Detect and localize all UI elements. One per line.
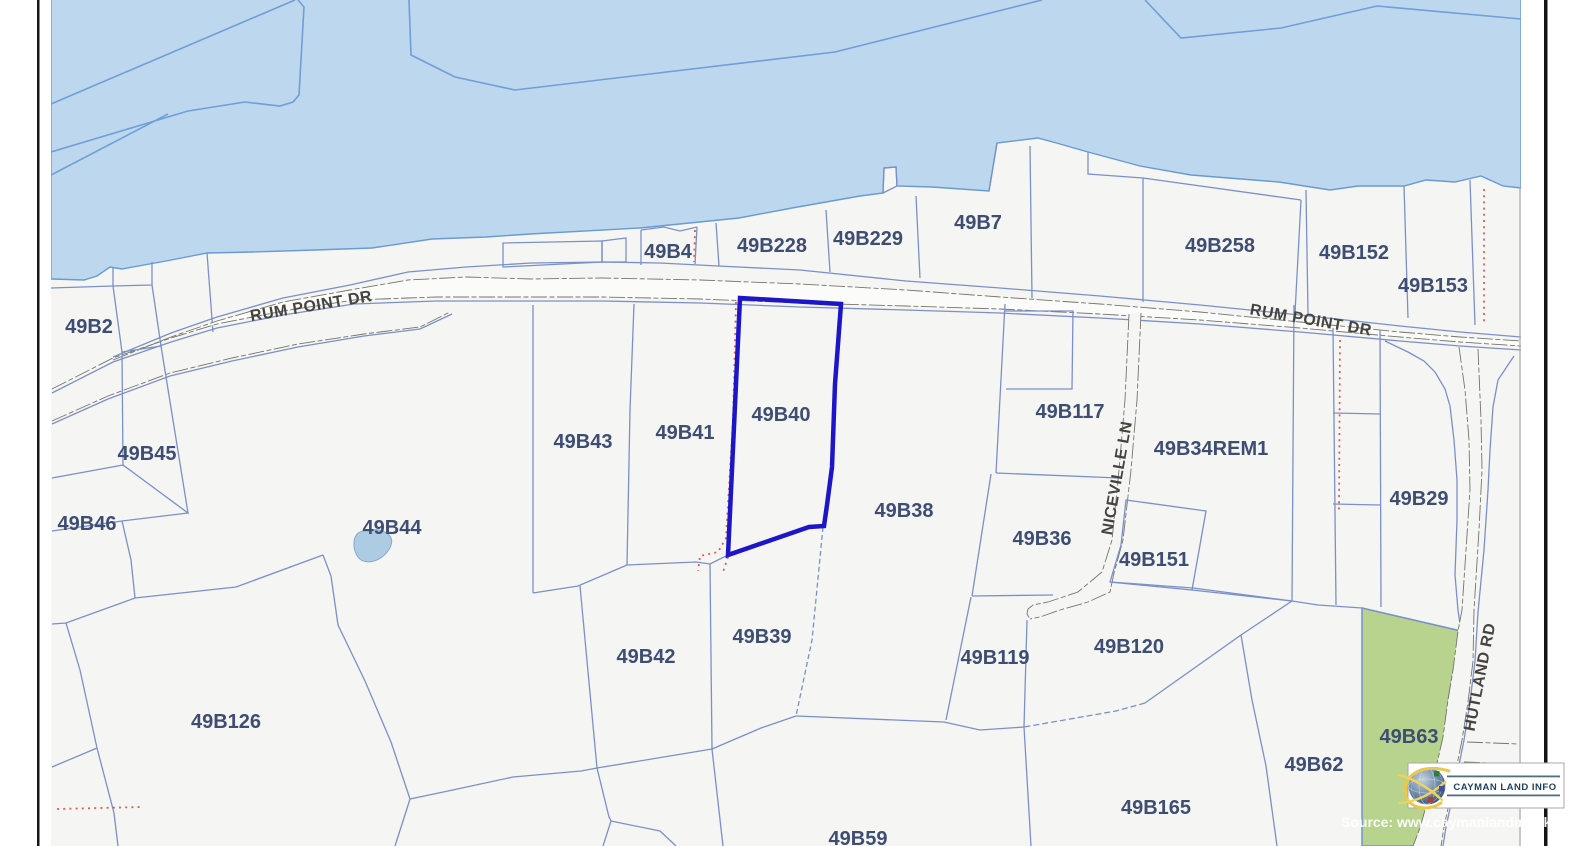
svg-text:49B59: 49B59 <box>829 828 888 846</box>
svg-text:49B228: 49B228 <box>737 235 807 257</box>
svg-text:49B120: 49B120 <box>1094 636 1164 658</box>
svg-text:49B151: 49B151 <box>1119 549 1189 571</box>
svg-text:CAYMAN LAND INFO: CAYMAN LAND INFO <box>1453 782 1556 793</box>
svg-text:49B165: 49B165 <box>1121 797 1191 819</box>
svg-text:49B36: 49B36 <box>1013 528 1072 550</box>
svg-text:49B258: 49B258 <box>1185 235 1255 257</box>
svg-text:49B229: 49B229 <box>833 228 903 250</box>
svg-text:49B7: 49B7 <box>954 212 1002 234</box>
svg-text:49B62: 49B62 <box>1285 754 1344 776</box>
svg-text:49B42: 49B42 <box>617 646 676 668</box>
svg-text:49B46: 49B46 <box>58 513 117 535</box>
svg-text:49B63: 49B63 <box>1380 726 1439 748</box>
svg-text:49B39: 49B39 <box>733 626 792 648</box>
svg-text:49B117: 49B117 <box>1036 401 1105 423</box>
svg-text:49B44: 49B44 <box>363 517 423 539</box>
svg-text:49B119: 49B119 <box>961 647 1030 669</box>
svg-text:49B34REM1: 49B34REM1 <box>1154 438 1269 460</box>
svg-text:49B41: 49B41 <box>656 422 715 444</box>
svg-text:49B38: 49B38 <box>875 500 934 522</box>
svg-text:49B40: 49B40 <box>752 404 811 426</box>
svg-text:49B153: 49B153 <box>1398 275 1468 297</box>
svg-text:49B152: 49B152 <box>1319 242 1389 264</box>
svg-text:49B4: 49B4 <box>644 241 693 263</box>
svg-text:49B45: 49B45 <box>118 443 177 465</box>
svg-text:49B43: 49B43 <box>554 431 613 453</box>
svg-text:49B2: 49B2 <box>65 316 113 338</box>
svg-text:Source: www.caymanlandinfo.ky: Source: www.caymanlandinfo.ky <box>1341 814 1559 830</box>
svg-text:49B29: 49B29 <box>1390 488 1449 510</box>
svg-text:49B126: 49B126 <box>191 711 261 733</box>
